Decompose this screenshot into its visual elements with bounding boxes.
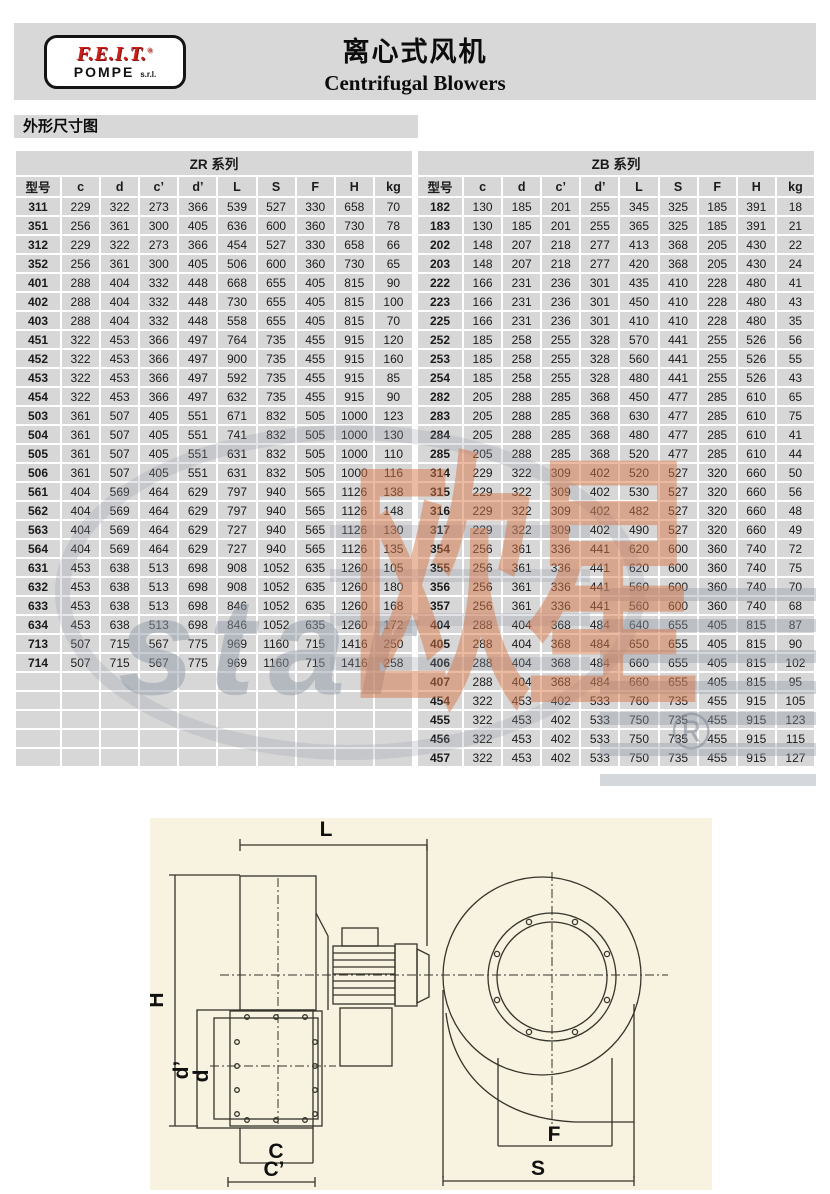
value-cell: 1126: [336, 540, 373, 557]
value-cell: 218: [542, 236, 579, 253]
empty-cell: [218, 692, 255, 709]
value-cell: 741: [218, 426, 255, 443]
value-cell: 655: [660, 635, 697, 652]
value-cell: 120: [375, 331, 412, 348]
value-cell: 309: [542, 502, 579, 519]
value-cell: 797: [218, 502, 255, 519]
dim-label-F: F: [548, 1123, 561, 1146]
series-title: ZB 系列: [418, 151, 814, 175]
value-cell: 368: [542, 654, 579, 671]
empty-cell: [140, 711, 177, 728]
column-header: S: [660, 177, 697, 196]
value-cell: 320: [699, 483, 736, 500]
value-cell: 630: [620, 407, 657, 424]
value-cell: 430: [738, 255, 775, 272]
value-cell: 231: [503, 274, 540, 291]
value-cell: 255: [581, 217, 618, 234]
value-cell: 68: [777, 597, 814, 614]
value-cell: 940: [258, 521, 295, 538]
value-cell: 207: [503, 255, 540, 272]
value-cell: 455: [297, 350, 334, 367]
empty-cell: [140, 730, 177, 747]
volute-curve: [446, 1013, 634, 1122]
model-cell: 453: [16, 369, 60, 386]
dim-label-H: H: [150, 992, 168, 1007]
value-cell: 18: [777, 198, 814, 215]
value-cell: 629: [179, 540, 216, 557]
empty-cell: [258, 730, 295, 747]
value-cell: 569: [101, 483, 138, 500]
value-cell: 1052: [258, 616, 295, 633]
value-cell: 185: [503, 217, 540, 234]
value-cell: 300: [140, 255, 177, 272]
value-cell: 533: [581, 749, 618, 766]
value-cell: 527: [660, 483, 697, 500]
value-cell: 330: [297, 198, 334, 215]
value-cell: 135: [375, 540, 412, 557]
value-cell: 448: [179, 312, 216, 329]
value-cell: 127: [777, 749, 814, 766]
value-cell: 513: [140, 559, 177, 576]
table-row: 31722932230940249052732066049: [418, 521, 814, 538]
empty-cell: [336, 749, 373, 766]
value-cell: 330: [297, 236, 334, 253]
value-cell: 70: [375, 198, 412, 215]
side-view-lines: [169, 839, 429, 1187]
value-cell: 507: [62, 635, 99, 652]
value-cell: 255: [542, 369, 579, 386]
value-cell: 539: [218, 198, 255, 215]
value-cell: 368: [581, 426, 618, 443]
value-cell: 530: [620, 483, 657, 500]
empty-cell: [62, 673, 99, 690]
value-cell: 402: [542, 711, 579, 728]
value-cell: 551: [179, 445, 216, 462]
value-cell: 231: [503, 293, 540, 310]
value-cell: 610: [738, 445, 775, 462]
value-cell: 148: [464, 236, 501, 253]
value-cell: 658: [336, 198, 373, 215]
column-header: F: [699, 177, 736, 196]
value-cell: 229: [464, 464, 501, 481]
value-cell: 735: [258, 369, 295, 386]
model-cell: 452: [16, 350, 60, 367]
dimension-diagram: L H d’ d C C’ F S: [150, 818, 712, 1190]
table-row: 22216623123630143541022848041: [418, 274, 814, 291]
value-cell: 229: [464, 483, 501, 500]
model-cell: 401: [16, 274, 60, 291]
value-cell: 1126: [336, 502, 373, 519]
value-cell: 85: [375, 369, 412, 386]
table-row: 45332245336649759273545591585: [16, 369, 412, 386]
value-cell: 105: [375, 559, 412, 576]
column-header: c’: [542, 177, 579, 196]
value-cell: 430: [738, 236, 775, 253]
column-header: S: [258, 177, 295, 196]
value-cell: 24: [777, 255, 814, 272]
value-cell: 368: [542, 635, 579, 652]
value-cell: 600: [660, 559, 697, 576]
model-cell: 633: [16, 597, 60, 614]
empty-cell: [16, 749, 60, 766]
value-cell: 730: [336, 217, 373, 234]
value-cell: 256: [62, 255, 99, 272]
value-cell: 255: [581, 198, 618, 215]
value-cell: 148: [375, 502, 412, 519]
value-cell: 635: [297, 578, 334, 595]
model-cell: 356: [418, 578, 462, 595]
value-cell: 527: [660, 521, 697, 538]
value-cell: 288: [503, 426, 540, 443]
value-cell: 366: [179, 236, 216, 253]
dim-label-d: d: [190, 1070, 213, 1083]
value-cell: 361: [503, 597, 540, 614]
value-cell: 404: [101, 274, 138, 291]
value-cell: 551: [179, 407, 216, 424]
value-cell: 332: [140, 312, 177, 329]
value-cell: 288: [464, 654, 501, 671]
table-row: 63345363851369884610526351260168: [16, 597, 412, 614]
table-row: 28320528828536863047728561075: [418, 407, 814, 424]
value-cell: 660: [738, 464, 775, 481]
value-cell: 1260: [336, 616, 373, 633]
value-cell: 160: [375, 350, 412, 367]
value-cell: 360: [297, 255, 334, 272]
value-cell: 815: [738, 635, 775, 652]
value-cell: 231: [503, 312, 540, 329]
value-cell: 368: [542, 673, 579, 690]
value-cell: 1052: [258, 578, 295, 595]
value-cell: 402: [581, 502, 618, 519]
table-row: 35725636133644156060036074068: [418, 597, 814, 614]
value-cell: 320: [699, 521, 736, 538]
value-cell: 600: [660, 578, 697, 595]
value-cell: 205: [699, 236, 736, 253]
table-row: 454322453402533760735455915105: [418, 692, 814, 709]
value-cell: 915: [738, 749, 775, 766]
table-row: 5033615074055516718325051000123: [16, 407, 412, 424]
column-header: c: [464, 177, 501, 196]
value-cell: 735: [258, 350, 295, 367]
value-cell: 285: [542, 445, 579, 462]
empty-cell: [101, 730, 138, 747]
value-cell: 600: [258, 255, 295, 272]
value-cell: 322: [503, 464, 540, 481]
value-cell: 201: [542, 217, 579, 234]
empty-cell: [16, 711, 60, 728]
value-cell: 322: [62, 331, 99, 348]
value-cell: 1000: [336, 407, 373, 424]
value-cell: 1052: [258, 597, 295, 614]
page-title-english: Centrifugal Blowers: [14, 71, 816, 96]
table-row: 31222932227336645452733065866: [16, 236, 412, 253]
table-row: 451322453366497764735455915120: [16, 331, 412, 348]
empty-row: [16, 711, 412, 728]
value-cell: 505: [297, 407, 334, 424]
empty-cell: [258, 673, 295, 690]
value-cell: 497: [179, 388, 216, 405]
value-cell: 455: [297, 388, 334, 405]
value-cell: 258: [375, 654, 412, 671]
value-cell: 22: [777, 236, 814, 253]
table-row: 25218525825532857044125552656: [418, 331, 814, 348]
table-row: 40528840436848465065540581590: [418, 635, 814, 652]
motor-support: [340, 1008, 392, 1066]
value-cell: 477: [660, 407, 697, 424]
model-cell: 455: [418, 711, 462, 728]
value-cell: 915: [738, 711, 775, 728]
table-row: 71450771556777596911607151416258: [16, 654, 412, 671]
value-cell: 130: [375, 426, 412, 443]
value-cell: 1160: [258, 635, 295, 652]
centerlines: [210, 872, 668, 1134]
value-cell: 110: [375, 445, 412, 462]
value-cell: 256: [464, 597, 501, 614]
value-cell: 638: [101, 559, 138, 576]
value-cell: 166: [464, 312, 501, 329]
value-cell: 526: [738, 369, 775, 386]
value-cell: 116: [375, 464, 412, 481]
value-cell: 750: [620, 711, 657, 728]
value-cell: 404: [503, 616, 540, 633]
value-cell: 404: [503, 673, 540, 690]
value-cell: 453: [101, 369, 138, 386]
value-cell: 366: [140, 369, 177, 386]
value-cell: 455: [297, 331, 334, 348]
value-cell: 322: [464, 730, 501, 747]
value-cell: 730: [218, 293, 255, 310]
value-cell: 815: [738, 673, 775, 690]
value-cell: 410: [660, 293, 697, 310]
value-cell: 533: [581, 692, 618, 709]
value-cell: 185: [464, 350, 501, 367]
value-cell: 102: [777, 654, 814, 671]
value-cell: 205: [464, 407, 501, 424]
empty-cell: [297, 730, 334, 747]
value-cell: 497: [179, 369, 216, 386]
value-cell: 635: [297, 616, 334, 633]
model-cell: 506: [16, 464, 60, 481]
value-cell: 405: [179, 217, 216, 234]
table-row: 63145363851369890810526351260105: [16, 559, 412, 576]
value-cell: 640: [620, 616, 657, 633]
value-cell: 484: [581, 616, 618, 633]
empty-cell: [140, 692, 177, 709]
value-cell: 207: [503, 236, 540, 253]
value-cell: 569: [101, 521, 138, 538]
model-cell: 631: [16, 559, 60, 576]
column-header: F: [297, 177, 334, 196]
empty-cell: [218, 711, 255, 728]
empty-cell: [336, 692, 373, 709]
model-cell: 454: [418, 692, 462, 709]
model-cell: 561: [16, 483, 60, 500]
value-cell: 698: [179, 597, 216, 614]
model-cell: 283: [418, 407, 462, 424]
value-cell: 405: [140, 464, 177, 481]
value-cell: 480: [738, 312, 775, 329]
value-cell: 322: [62, 369, 99, 386]
value-cell: 361: [101, 255, 138, 272]
value-cell: 258: [503, 350, 540, 367]
value-cell: 320: [699, 502, 736, 519]
value-cell: 655: [660, 654, 697, 671]
value-cell: 480: [620, 426, 657, 443]
empty-cell: [16, 730, 60, 747]
empty-cell: [62, 749, 99, 766]
table-row: 22516623123630141041022848035: [418, 312, 814, 329]
value-cell: 636: [218, 217, 255, 234]
value-cell: 448: [179, 293, 216, 310]
value-cell: 815: [738, 654, 775, 671]
value-cell: 65: [777, 388, 814, 405]
table-row: 452322453366497900735455915160: [16, 350, 412, 367]
value-cell: 775: [179, 654, 216, 671]
value-cell: 228: [699, 293, 736, 310]
model-cell: 252: [418, 331, 462, 348]
value-cell: 620: [620, 559, 657, 576]
value-cell: 285: [699, 426, 736, 443]
value-cell: 560: [620, 597, 657, 614]
value-cell: 360: [699, 559, 736, 576]
value-cell: 288: [62, 274, 99, 291]
value-cell: 655: [660, 616, 697, 633]
value-cell: 464: [140, 521, 177, 538]
table-row: 5624045694646297979405651126148: [16, 502, 412, 519]
value-cell: 940: [258, 502, 295, 519]
value-cell: 273: [140, 236, 177, 253]
value-cell: 464: [140, 483, 177, 500]
value-cell: 740: [738, 578, 775, 595]
value-cell: 402: [542, 730, 579, 747]
value-cell: 450: [620, 388, 657, 405]
table-row: 35625636133644156060036074070: [418, 578, 814, 595]
value-cell: 405: [699, 654, 736, 671]
motor-fins: [333, 953, 395, 995]
value-cell: 301: [581, 312, 618, 329]
value-cell: 506: [218, 255, 255, 272]
value-cell: 236: [542, 312, 579, 329]
value-cell: 75: [777, 559, 814, 576]
value-cell: 405: [699, 635, 736, 652]
value-cell: 1052: [258, 559, 295, 576]
value-cell: 655: [660, 673, 697, 690]
empty-cell: [375, 749, 412, 766]
value-cell: 49: [777, 521, 814, 538]
value-cell: 527: [660, 502, 697, 519]
value-cell: 402: [581, 464, 618, 481]
table-row: 35425636133644162060036074072: [418, 540, 814, 557]
value-cell: 185: [503, 198, 540, 215]
empty-cell: [140, 673, 177, 690]
value-cell: 255: [699, 369, 736, 386]
empty-cell: [218, 730, 255, 747]
empty-cell: [179, 730, 216, 747]
value-cell: 405: [297, 312, 334, 329]
value-cell: 256: [62, 217, 99, 234]
value-cell: 570: [620, 331, 657, 348]
value-cell: 301: [581, 293, 618, 310]
table-row: 71350771556777596911607151416250: [16, 635, 412, 652]
value-cell: 797: [218, 483, 255, 500]
table-row: 35525636133644162060036074075: [418, 559, 814, 576]
value-cell: 815: [738, 616, 775, 633]
value-cell: 484: [581, 673, 618, 690]
value-cell: 660: [738, 502, 775, 519]
value-cell: 750: [620, 749, 657, 766]
value-cell: 404: [503, 635, 540, 652]
front-view-lines: [443, 877, 641, 1186]
value-cell: 441: [581, 559, 618, 576]
value-cell: 402: [581, 483, 618, 500]
column-header: kg: [375, 177, 412, 196]
value-cell: 441: [660, 350, 697, 367]
value-cell: 441: [581, 540, 618, 557]
empty-row: [16, 749, 412, 766]
table-row: 63245363851369890810526351260180: [16, 578, 412, 595]
value-cell: 90: [375, 388, 412, 405]
column-header: H: [336, 177, 373, 196]
value-cell: 185: [464, 331, 501, 348]
table-row: 40328840433244855865540581570: [16, 312, 412, 329]
empty-cell: [258, 749, 295, 766]
model-cell: 355: [418, 559, 462, 576]
empty-cell: [258, 711, 295, 728]
value-cell: 527: [258, 198, 295, 215]
value-cell: 1160: [258, 654, 295, 671]
value-cell: 322: [503, 483, 540, 500]
value-cell: 668: [218, 274, 255, 291]
value-cell: 480: [738, 274, 775, 291]
value-cell: 273: [140, 198, 177, 215]
value-cell: 520: [620, 464, 657, 481]
value-cell: 361: [62, 445, 99, 462]
catalog-page: F.E.I.T.® POMPE s.r.l. 离心式风机 Centrifugal…: [0, 0, 830, 1194]
value-cell: 229: [62, 198, 99, 215]
value-cell: 320: [699, 464, 736, 481]
value-cell: 560: [620, 350, 657, 367]
value-cell: 256: [464, 578, 501, 595]
value-cell: 480: [738, 293, 775, 310]
value-cell: 65: [375, 255, 412, 272]
value-cell: 288: [62, 293, 99, 310]
value-cell: 735: [660, 730, 697, 747]
value-cell: 832: [258, 445, 295, 462]
value-cell: 631: [218, 445, 255, 462]
value-cell: 908: [218, 578, 255, 595]
table-row: 22316623123630145041022848043: [418, 293, 814, 310]
value-cell: 715: [101, 654, 138, 671]
value-cell: 638: [101, 578, 138, 595]
column-header: H: [738, 177, 775, 196]
model-cell: 564: [16, 540, 60, 557]
value-cell: 322: [503, 521, 540, 538]
model-cell: 223: [418, 293, 462, 310]
value-cell: 567: [140, 654, 177, 671]
value-cell: 832: [258, 407, 295, 424]
value-cell: 336: [542, 578, 579, 595]
flange-bolt-square: [230, 1011, 322, 1126]
value-cell: 185: [699, 217, 736, 234]
value-cell: 698: [179, 559, 216, 576]
value-cell: 391: [738, 217, 775, 234]
value-cell: 632: [218, 388, 255, 405]
value-cell: 455: [699, 730, 736, 747]
table-row: 40728840436848466065540581595: [418, 673, 814, 690]
value-cell: 405: [140, 426, 177, 443]
value-cell: 301: [581, 274, 618, 291]
value-cell: 520: [620, 445, 657, 462]
